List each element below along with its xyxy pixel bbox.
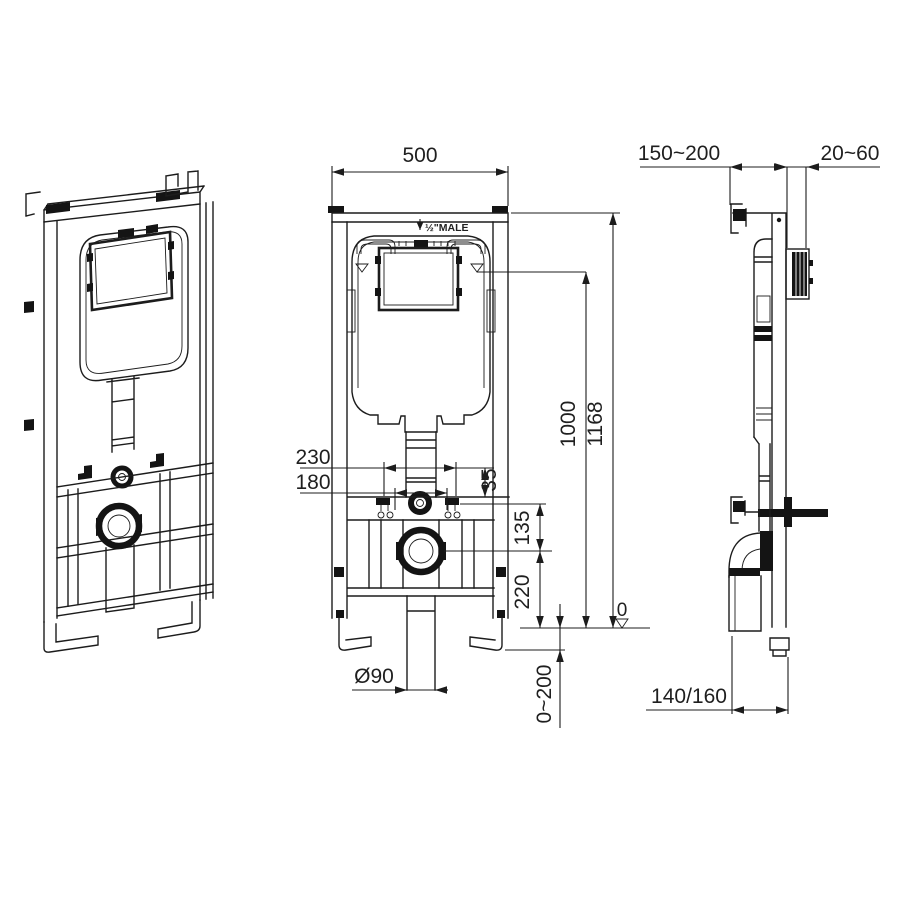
front-corner-tab-right [492,206,508,213]
dim-plate-depth-label: 20~60 [821,142,880,165]
dim-rod-outer-label: 230 [295,446,330,469]
side-wall-bracket-top [733,209,746,221]
dim-front-width-label: 500 [402,144,437,167]
front-corner-tab-left [328,206,344,213]
background [0,0,900,900]
inlet-boss [414,240,428,247]
anchor-bracket-left [376,498,390,505]
pan-fixing-rod [758,509,828,517]
dim-drain-dia-label: Ø90 [354,665,394,688]
dim-bolt-to-drain-label: 135 [511,510,534,545]
drawing-canvas: 500 ½"MALE 230 180 35 135 [0,0,900,900]
dim-drain-height-label: 220 [511,574,534,609]
dim-water-level-label: 1000 [557,401,580,448]
dim-rod-offset-label: 35 [478,468,501,491]
side-wall-bracket-bottom [733,501,745,512]
dim-rod-inner-label: 180 [295,471,330,494]
dim-frame-height-label: 1168 [584,401,607,446]
dim-foot-adjust-label: 0~200 [533,665,556,724]
dim-wall-distance-label: 150~200 [638,142,720,165]
floor-zero-label: 0 [617,600,628,621]
inlet-label: ½"MALE [425,222,468,234]
dim-frame-depth-label: 140/160 [651,685,727,708]
technical-drawing: 500 ½"MALE 230 180 35 135 [0,0,900,900]
